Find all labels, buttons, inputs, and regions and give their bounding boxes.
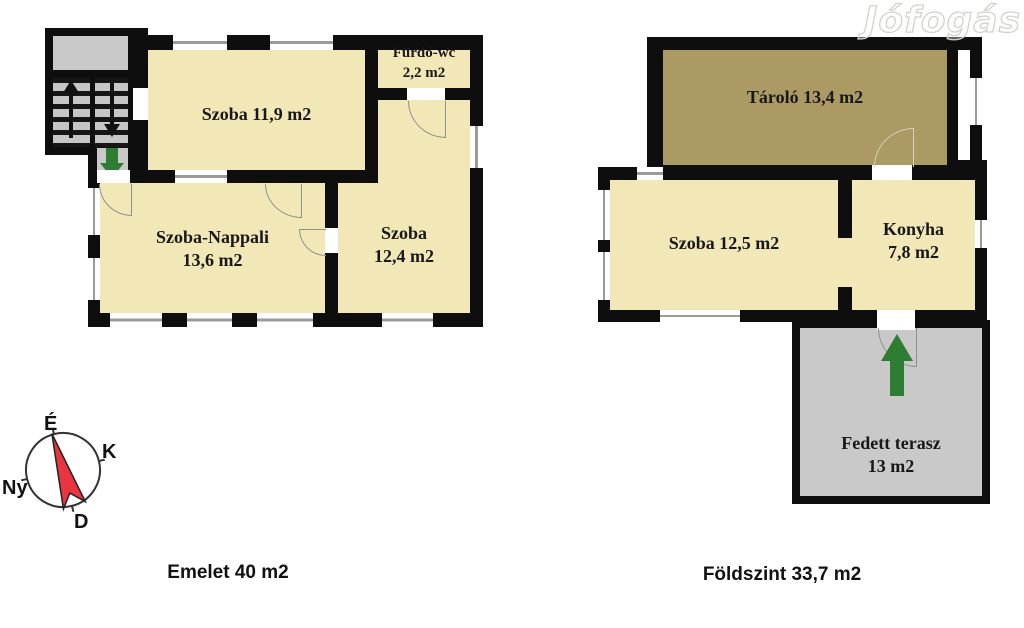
window xyxy=(110,313,162,327)
foldszint-caption: Földszint 33,7 m2 xyxy=(682,564,882,586)
window xyxy=(88,188,100,235)
wall-segment xyxy=(838,180,852,238)
wall-segment xyxy=(912,165,947,180)
room-label-furdo-wc: Fürdő-wc 2,2 m2 xyxy=(366,44,482,83)
window xyxy=(660,310,740,322)
room-label-line: 12,4 m2 xyxy=(338,245,470,268)
wall-segment xyxy=(970,50,982,78)
room-label-szoba-nappali: Szoba-Nappali 13,6 m2 xyxy=(100,226,325,273)
room-label-tarolo: Tároló 13,4 m2 xyxy=(663,86,947,109)
compass-west-label: Ny xyxy=(2,477,28,500)
stairs-up-arrow-stem xyxy=(69,92,73,138)
wall-segment xyxy=(970,125,982,162)
window xyxy=(88,258,100,300)
wall-segment xyxy=(88,170,378,183)
door-opening xyxy=(872,165,912,180)
wall-segment xyxy=(838,287,852,310)
door-opening xyxy=(877,310,915,330)
terrace-entrance-arrow-stem xyxy=(890,360,904,396)
wall-segment xyxy=(947,37,958,172)
jofogas-watermark: Jófogás xyxy=(864,0,1024,41)
room-label-line: 2,2 m2 xyxy=(366,64,482,84)
window xyxy=(470,126,483,168)
floorplan-canvas: Szoba 11,9 m2 Fürdő-wc 2,2 m2 Szoba-Napp… xyxy=(0,0,1024,628)
room-label-szoba-125: Szoba 12,5 m2 xyxy=(610,232,838,255)
window xyxy=(175,170,227,183)
compass-east-label: K xyxy=(102,441,116,464)
room-label-line: Szoba-Nappali xyxy=(100,226,325,249)
terrace-entrance-arrow-icon xyxy=(881,334,913,361)
emelet-caption: Emelet 40 m2 xyxy=(128,562,328,584)
room-label-line: 13,6 m2 xyxy=(100,249,325,272)
wall-segment xyxy=(325,253,338,313)
compass-rose-graphic xyxy=(8,408,118,528)
wall-segment xyxy=(325,183,338,228)
window xyxy=(257,313,313,327)
door-opening xyxy=(97,170,130,183)
compass-north-label: É xyxy=(44,413,57,436)
window xyxy=(975,220,987,248)
window xyxy=(970,78,982,125)
room-label-szoba-felso: Szoba 11,9 m2 xyxy=(148,103,365,126)
stairs-landing xyxy=(53,36,128,70)
stairs-down-arrow-icon xyxy=(104,124,120,137)
room-label-line: Fürdő-wc xyxy=(366,44,482,64)
wall-segment xyxy=(663,165,872,180)
compass-rose: É K Ny D xyxy=(8,408,118,528)
window xyxy=(187,313,232,327)
compass-south-label: D xyxy=(74,511,88,534)
room-label-fedett-terasz: Fedett terasz 13 m2 xyxy=(800,432,982,479)
wall-segment xyxy=(88,147,97,170)
room-label-line: 13 m2 xyxy=(800,455,982,478)
window xyxy=(598,252,610,300)
window xyxy=(270,35,333,50)
room-label-line: 7,8 m2 xyxy=(852,241,975,264)
stairs-down-arrow-stem xyxy=(110,80,114,126)
room-label-konyha: Konyha 7,8 m2 xyxy=(852,218,975,265)
window xyxy=(173,35,227,50)
wall-opening xyxy=(133,88,148,120)
window xyxy=(637,167,663,180)
window xyxy=(382,313,433,327)
room-label-line: Konyha xyxy=(852,218,975,241)
room-label-szoba-124: Szoba 12,4 m2 xyxy=(338,222,470,269)
entrance-arrow-stem xyxy=(106,148,118,164)
room-label-line: Fedett terasz xyxy=(800,432,982,455)
room-label-line: Szoba xyxy=(338,222,470,245)
wall-segment xyxy=(647,37,663,178)
window xyxy=(598,190,610,240)
